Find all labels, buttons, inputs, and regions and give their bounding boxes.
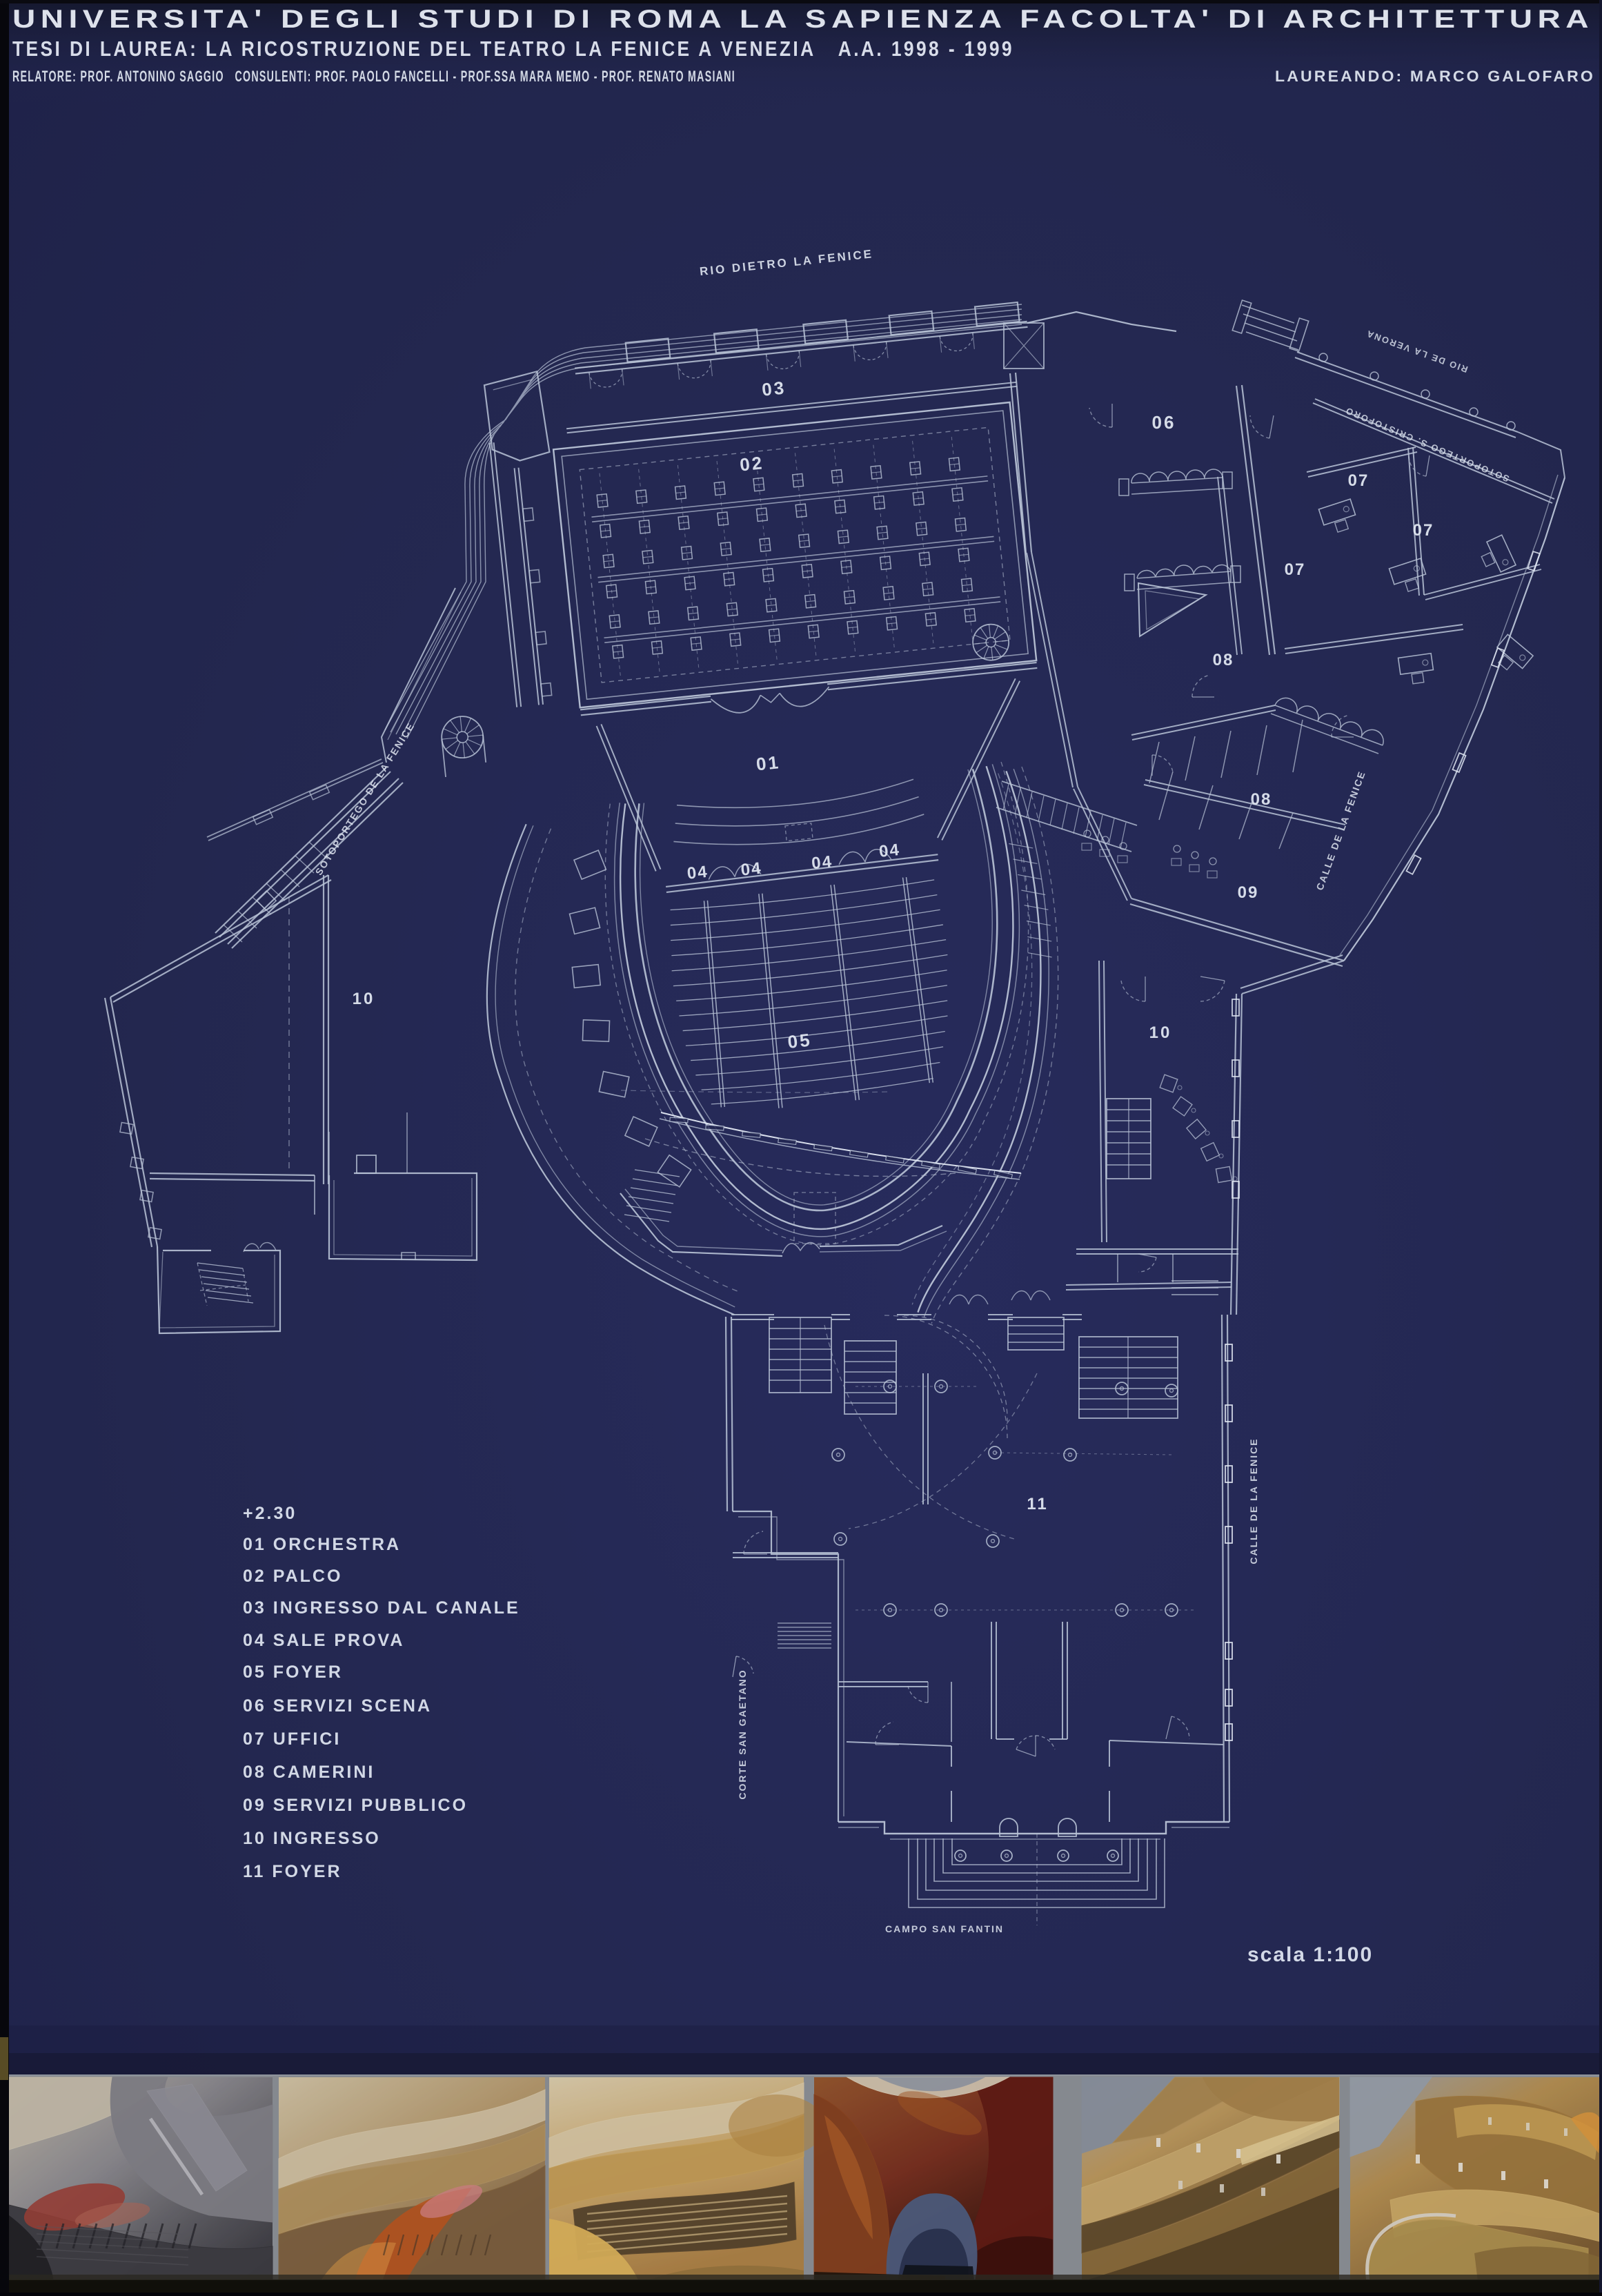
svg-text:10 INGRESSO: 10 INGRESSO [243,1829,381,1848]
svg-text:04: 04 [811,852,833,873]
svg-text:06 SERVIZI SCENA: 06 SERVIZI SCENA [243,1696,432,1716]
svg-text:09: 09 [1238,883,1259,902]
svg-text:04 SALE PROVA: 04 SALE PROVA [243,1631,404,1650]
svg-text:11: 11 [1027,1495,1048,1513]
svg-text:03 INGRESSO DAL CANALE: 03 INGRESSO DAL CANALE [243,1598,520,1618]
svg-text:08: 08 [1213,651,1234,669]
svg-text:UNIVERSITA' DEGLI STUDI DI ROM: UNIVERSITA' DEGLI STUDI DI ROMA LA SAPIE… [12,5,1594,33]
svg-text:06: 06 [1152,412,1176,433]
svg-text:04: 04 [878,841,901,861]
svg-text:scala 1:100: scala 1:100 [1247,1943,1373,1966]
svg-text:07 UFFICI: 07 UFFICI [243,1729,341,1749]
svg-text:CORTE SAN GAETANO: CORTE SAN GAETANO [737,1669,748,1799]
svg-text:05: 05 [787,1029,813,1052]
svg-text:05 FOYER: 05 FOYER [243,1662,343,1682]
svg-text:03: 03 [761,377,787,400]
svg-text:RELATORE: PROF. ANTONINO SAGGI: RELATORE: PROF. ANTONINO SAGGIO CONSULEN… [12,68,735,85]
svg-text:+2.30: +2.30 [243,1504,297,1523]
svg-text:07: 07 [1413,521,1434,540]
svg-text:TESI DI LAUREA: LA RICOSTRUZIO: TESI DI LAUREA: LA RICOSTRUZIONE DEL TEA… [12,37,1014,61]
svg-text:01: 01 [755,752,782,774]
svg-text:01 ORCHESTRA: 01 ORCHESTRA [243,1535,401,1554]
svg-text:10: 10 [1149,1023,1172,1042]
svg-text:LAUREANDO: MARCO GALOFARO: LAUREANDO: MARCO GALOFARO [1275,68,1595,85]
svg-text:08: 08 [1251,790,1272,809]
svg-text:08 CAMERINI: 08 CAMERINI [243,1763,375,1782]
svg-text:07: 07 [1285,560,1306,579]
svg-text:CAMPO SAN FANTIN: CAMPO SAN FANTIN [885,1923,1004,1934]
svg-text:CALLE DE LA FENICE: CALLE DE LA FENICE [1248,1438,1259,1564]
svg-text:09 SERVIZI PUBBLICO: 09 SERVIZI PUBBLICO [243,1796,468,1815]
svg-text:04: 04 [740,859,762,880]
svg-text:02 PALCO: 02 PALCO [243,1567,342,1586]
svg-text:04: 04 [686,863,709,883]
svg-text:02: 02 [739,452,765,475]
svg-text:10: 10 [353,990,375,1008]
svg-text:07: 07 [1348,471,1369,490]
svg-text:11 FOYER: 11 FOYER [243,1862,342,1881]
